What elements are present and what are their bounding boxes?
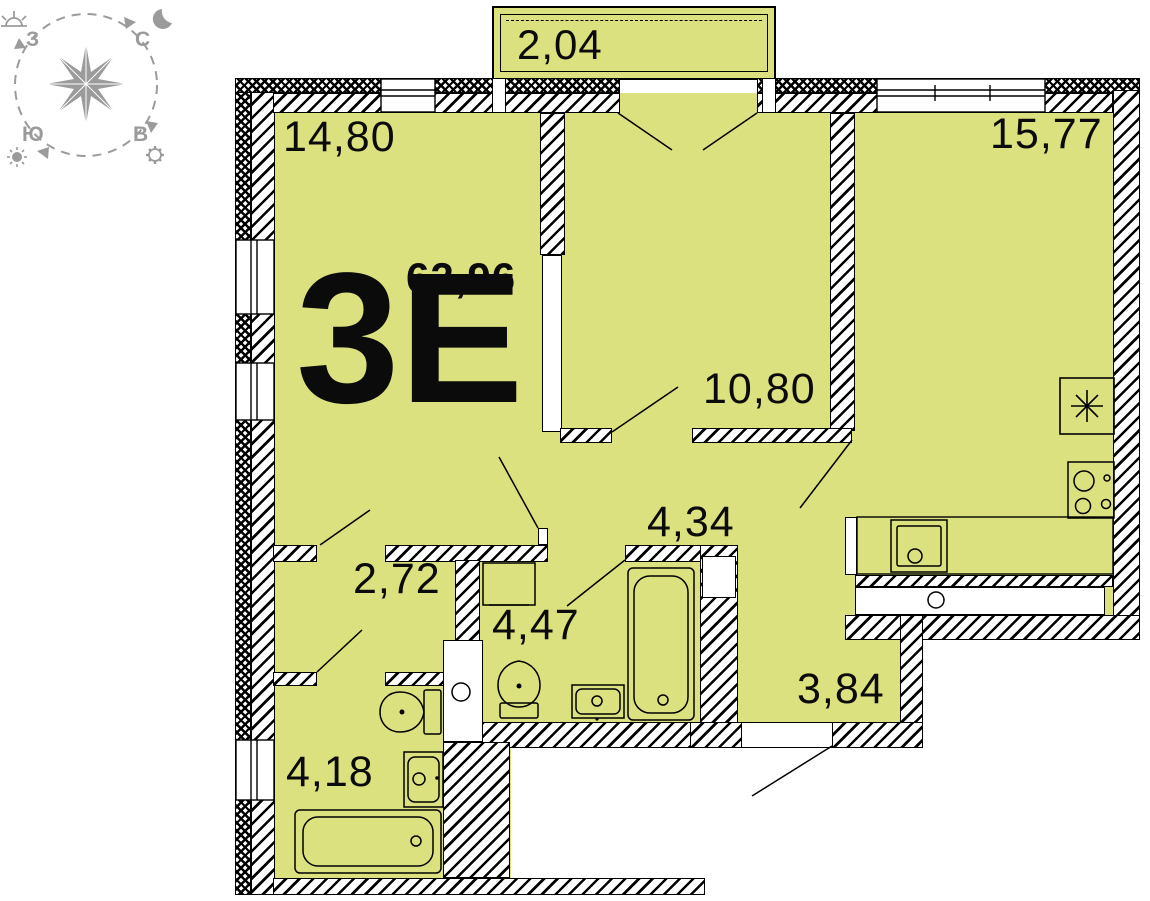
compass-east-label: В (133, 123, 148, 146)
door-jamb-living (538, 528, 548, 545)
wall-bedroom-bottom-left (560, 428, 612, 443)
wall-left-inner (251, 78, 275, 895)
bedroom-area-label: 10,80 (703, 368, 816, 411)
entry-door-swing (752, 746, 832, 796)
balcony-stub-right (762, 78, 776, 113)
kitchen-area-label: 15,77 (990, 113, 1103, 156)
compass-north-label: С (135, 28, 150, 51)
corridor-area-label: 2,72 (353, 558, 441, 601)
wall-bedroom-kitchen (830, 113, 855, 431)
wall-entry-bottom-right (832, 722, 923, 748)
compass-star (46, 44, 126, 124)
wall-entry-bottom-left (690, 722, 742, 748)
sunset-icon (1, 11, 27, 26)
entry-door-opening (742, 722, 832, 748)
duct-kitchen (855, 587, 1105, 615)
wall-corridor-top-left (273, 545, 317, 562)
compass-west-label: З (26, 28, 39, 51)
apartment-type-label: 3Е (296, 246, 524, 432)
wall-counter-stub (845, 517, 857, 575)
bathroom-area-label: 4,47 (492, 604, 580, 647)
shaft-bathrooms (443, 640, 483, 742)
wall-corridor-bottom-left (273, 672, 317, 686)
sun-icon (7, 147, 27, 167)
wall-bottom (273, 878, 705, 895)
bathroom2-area-label: 4,18 (286, 751, 374, 794)
compass-rose: З С Ю В (0, 0, 190, 190)
compass-arrows (14, 17, 158, 159)
wall-kitchen-bottom-thin (855, 575, 1113, 587)
living-area-label: 14,80 (283, 116, 396, 159)
balcony-stub-left (492, 78, 506, 113)
wall-top-left-outer (235, 78, 620, 93)
wall-bedroom-bottom-right (692, 428, 852, 443)
wall-right (1113, 90, 1140, 640)
wall-shaft-lower (443, 742, 510, 878)
wall-living-bedroom-light (542, 255, 562, 432)
wall-top-right-outer (757, 78, 1140, 93)
wall-top-left-inner (273, 93, 620, 113)
moon-icon (153, 9, 172, 29)
duct-bathroom (702, 556, 736, 598)
wall-left-outer (235, 78, 251, 895)
entry-area-label: 3,84 (797, 668, 885, 711)
wall-kitchen-bottom-thick (845, 615, 1140, 640)
hall-area-label: 4,34 (647, 501, 735, 544)
fill-kitchen (845, 93, 1140, 618)
balcony-area-label: 2,04 (517, 24, 603, 66)
compass-south-label: Ю (22, 123, 44, 146)
wall-living-bedroom (540, 113, 565, 255)
floor-plan: З С Ю В (0, 0, 1150, 901)
compass-circle (15, 14, 157, 156)
sun-rays-icon (146, 146, 164, 164)
